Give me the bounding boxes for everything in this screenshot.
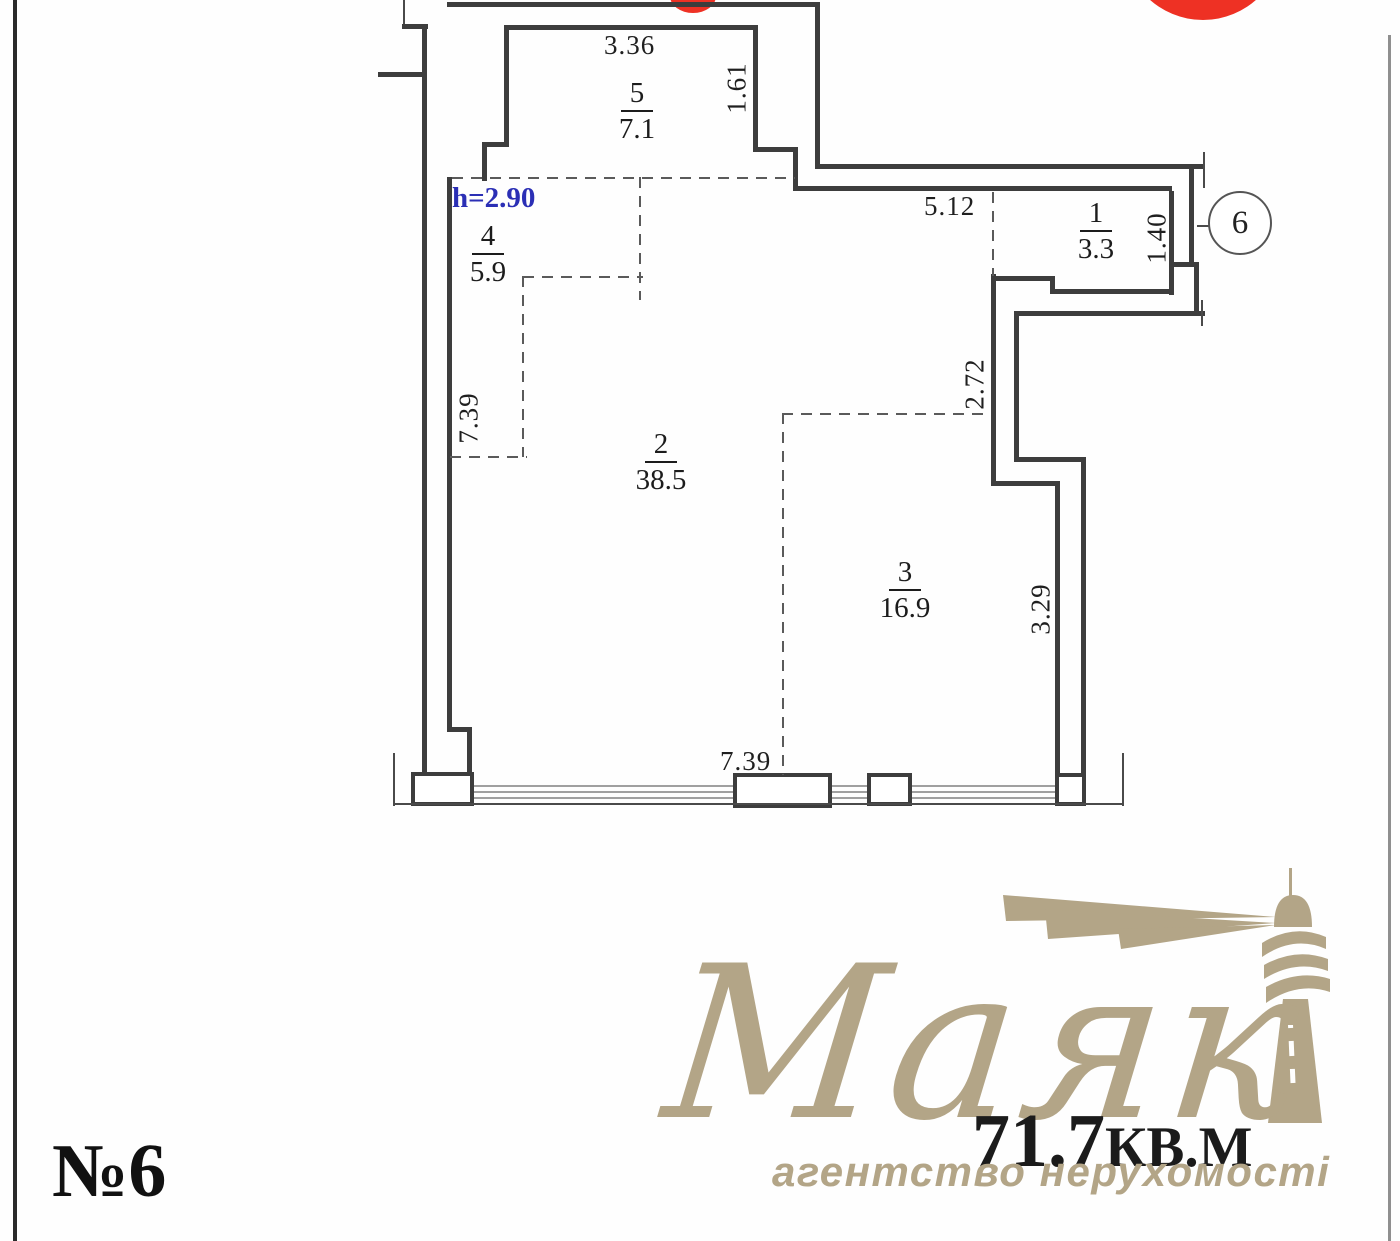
wall-segment: [482, 142, 487, 181]
window-line: [912, 791, 1055, 793]
dim-corridor: 5.12: [924, 191, 975, 222]
wall-segment: [753, 25, 758, 152]
dim-room5-right: 1.61: [722, 62, 753, 113]
stairwell-circle: 6: [1208, 191, 1272, 255]
dashed-partition: [450, 456, 527, 458]
window-line: [912, 797, 1055, 799]
dashed-partition: [452, 177, 795, 179]
wall-segment: [447, 2, 820, 7]
wall-corner-block: [1055, 773, 1086, 806]
wall-segment: [1194, 262, 1199, 315]
dashed-partition: [782, 413, 991, 415]
dim-tick: [1201, 300, 1203, 326]
dim-tick: [393, 753, 395, 806]
window-line: [474, 791, 733, 793]
dashed-partition: [992, 192, 994, 276]
dashed-partition: [639, 177, 641, 300]
room-label-4: 4 5.9: [440, 221, 536, 289]
dimension-line: [393, 803, 1124, 805]
wall-pier: [867, 773, 912, 806]
window-line: [912, 785, 1055, 787]
unit-number: №6: [52, 1128, 166, 1215]
window-line: [474, 785, 733, 787]
dim-tick: [403, 0, 405, 26]
red-marker-circle: [1123, 0, 1283, 20]
wall-segment: [1050, 289, 1174, 294]
window-line: [832, 791, 867, 793]
dim-right: 3.29: [1026, 583, 1057, 634]
page-right-border: [1388, 35, 1391, 1241]
dim-top: 3.36: [604, 30, 655, 61]
ceiling-height-note: h=2.90: [452, 182, 535, 215]
window-line: [832, 797, 867, 799]
dim-left: 7.39: [454, 392, 485, 443]
room-label-3: 3 16.9: [857, 557, 953, 625]
wall-segment: [793, 147, 798, 191]
room-label-2: 2 38.5: [613, 429, 709, 497]
wall-segment: [1081, 457, 1086, 806]
wall-pier: [411, 772, 474, 806]
dim-tick: [1122, 753, 1124, 806]
wall-segment: [991, 276, 1055, 281]
dim-bottom: 7.39: [720, 746, 771, 777]
watermark-tagline: агентство нерухомості: [772, 1148, 1330, 1196]
wall-segment: [378, 72, 424, 77]
dashed-partition: [782, 413, 784, 775]
wall-segment: [1014, 457, 1086, 462]
wall-segment: [1014, 311, 1019, 462]
wall-segment: [793, 186, 1172, 191]
stairwell-number: 6: [1232, 205, 1249, 242]
window-line: [474, 797, 733, 799]
room-label-1: 1 3.3: [1048, 198, 1144, 266]
wall-segment: [753, 147, 798, 152]
dim-entry: 1.40: [1142, 212, 1173, 263]
floor-plan-page: 3.36 1.61 5.12 1.40 2.72 3.29 7.39 7.39 …: [0, 0, 1400, 1241]
wall-segment: [504, 25, 509, 147]
dim-mid-right: 2.72: [960, 358, 991, 409]
window-line: [832, 785, 867, 787]
wall-segment: [991, 481, 1060, 486]
page-left-border: [13, 0, 17, 1241]
wall-segment: [467, 727, 472, 775]
room-label-5: 5 7.1: [589, 78, 685, 146]
wall-segment: [815, 164, 1205, 169]
dim-tick: [1203, 152, 1205, 188]
wall-segment: [422, 24, 427, 777]
wall-segment: [1014, 311, 1205, 316]
wall-segment: [991, 274, 996, 486]
dashed-partition: [523, 276, 643, 278]
wall-segment: [1189, 168, 1194, 267]
dashed-partition: [522, 276, 524, 457]
wall-segment: [815, 2, 820, 169]
